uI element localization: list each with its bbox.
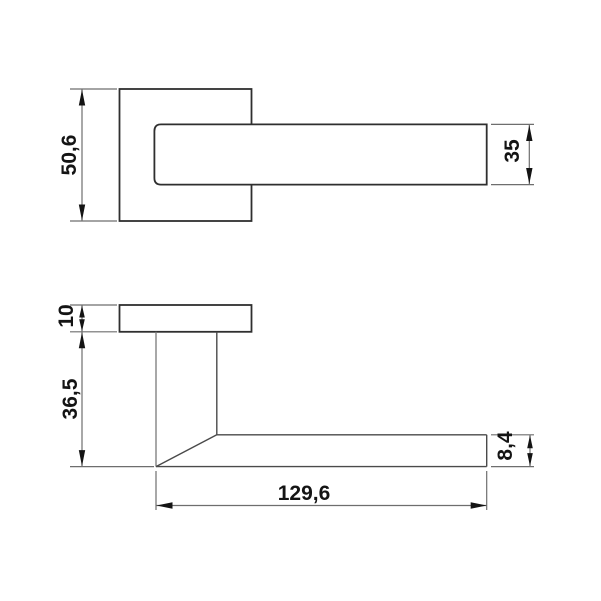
side-view: 10 36,5 8,4 <box>55 304 534 510</box>
dim-arrowhead-down <box>79 205 85 221</box>
dim-arrowhead-left <box>157 502 173 508</box>
dim-label-rosette-width: 50,6 <box>58 135 81 176</box>
dim-label-lever-bar-width: 35 <box>501 139 524 163</box>
dim-arrowhead-up <box>79 306 85 318</box>
neck-bend-edge <box>156 435 217 467</box>
dim-arrowhead-up <box>79 332 85 348</box>
dimension-rosette-width: 50,6 <box>58 89 117 221</box>
dim-arrowhead-up <box>526 125 532 141</box>
drawing-page: 50,6 35 <box>0 0 601 601</box>
dim-arrowhead-down <box>79 319 85 331</box>
dim-arrowhead-down <box>79 450 85 466</box>
top-view: 50,6 35 <box>58 89 534 221</box>
dim-label-handle-height: 36,5 <box>59 378 82 419</box>
dim-arrowhead-right <box>471 502 487 508</box>
dim-arrowhead-down <box>527 453 533 466</box>
dim-arrowhead-up <box>527 435 533 448</box>
rosette-side-outline <box>120 305 252 332</box>
dimension-handle-height: 36,5 <box>59 332 154 467</box>
technical-drawing-canvas: 50,6 35 <box>0 0 601 601</box>
dim-label-lever-thickness: 8,4 <box>494 431 517 461</box>
dim-label-handle-length: 129,6 <box>278 482 331 505</box>
dim-label-rosette-thickness: 10 <box>55 304 78 327</box>
dimension-lever-thickness: 8,4 <box>491 431 534 467</box>
dimension-lever-bar-width: 35 <box>491 124 534 184</box>
dim-arrowhead-up <box>79 90 85 106</box>
dimension-handle-length: 129,6 <box>156 471 487 510</box>
lever-bar-front-outline <box>154 124 486 184</box>
dim-arrowhead-down <box>526 168 532 184</box>
dimension-rosette-thickness: 10 <box>55 304 117 331</box>
